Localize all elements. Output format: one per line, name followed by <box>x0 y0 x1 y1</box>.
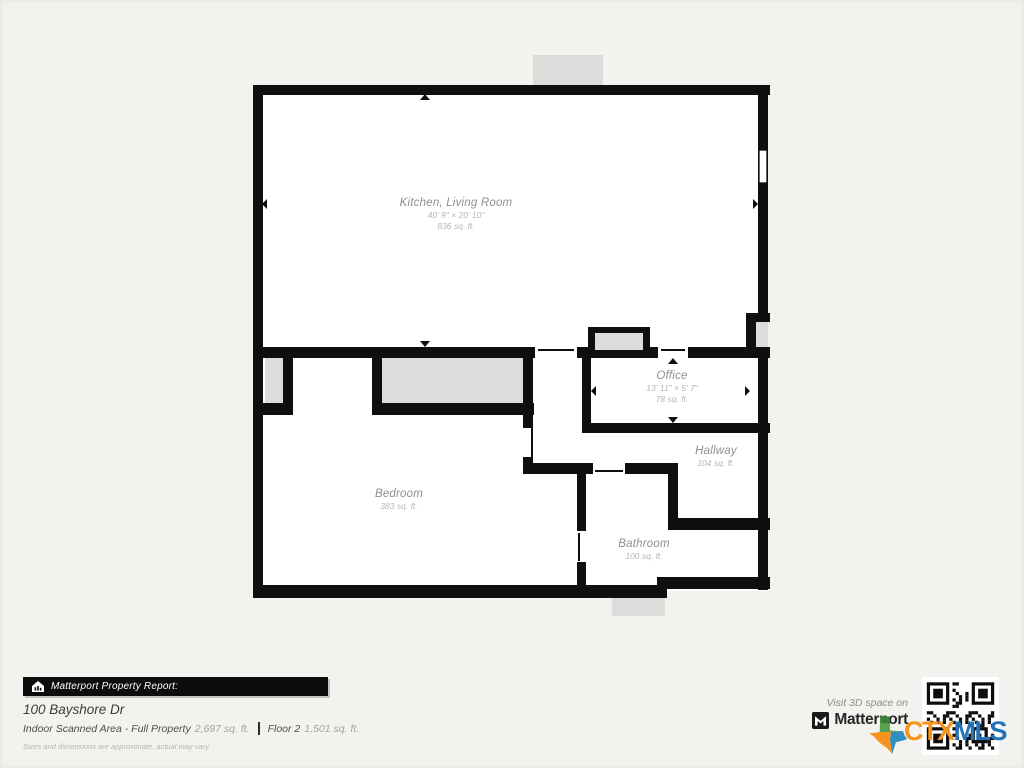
room-name: Office <box>646 369 697 383</box>
room-name: Bathroom <box>618 537 669 551</box>
matterport-logo-icon <box>812 712 829 729</box>
floor-area-value: 1,501 sq. ft. <box>304 723 359 735</box>
texas-icon <box>868 716 908 754</box>
right-notch <box>754 318 768 350</box>
fireplace-bump <box>595 333 643 350</box>
area-summary: Indoor Scanned Area - Full Property 2,69… <box>23 722 359 735</box>
room-area: 104 sq. ft. <box>695 458 737 469</box>
disclaimer-text: Sizes and dimensions are approximate, ac… <box>23 742 210 751</box>
room-label-office: Office 13' 11" × 5' 7" 78 sq. ft. <box>646 369 697 405</box>
property-address: 100 Bayshore Dr <box>23 702 124 717</box>
report-title-bar: Matterport Property Report: <box>23 677 328 696</box>
room-area: 100 sq. ft. <box>618 551 669 562</box>
porch-top <box>533 55 603 89</box>
room-dimensions: 13' 11" × 5' 7" <box>646 383 697 394</box>
floorplan-footprint <box>257 88 767 591</box>
house-icon <box>32 681 44 692</box>
separator <box>258 722 260 735</box>
room-dimensions: 40' 9" × 20' 10" <box>400 210 513 221</box>
room-label-hallway: Hallway 104 sq. ft. <box>695 444 737 469</box>
utility-chase <box>265 356 283 404</box>
room-area: 78 sq. ft. <box>646 394 697 405</box>
scanned-area-value: 2,697 sq. ft. <box>195 723 250 735</box>
room-label-bedroom: Bedroom 383 sq. ft. <box>375 487 423 512</box>
stair-strip <box>382 356 524 404</box>
room-area: 836 sq. ft. <box>400 221 513 232</box>
room-label-kitchen-living: Kitchen, Living Room 40' 9" × 20' 10" 83… <box>400 196 513 232</box>
report-title: Matterport Property Report: <box>51 681 178 692</box>
room-area: 383 sq. ft. <box>375 501 423 512</box>
window <box>759 150 767 183</box>
floor-label: Floor 2 <box>268 723 301 735</box>
room-name: Kitchen, Living Room <box>400 196 513 210</box>
ctx-mls-logo: CTXMLS <box>868 710 1006 754</box>
floorplan-canvas <box>0 0 1024 768</box>
scanned-area-label: Indoor Scanned Area - Full Property <box>23 723 191 735</box>
room-name: Hallway <box>695 444 737 458</box>
ctx-text: CTX <box>904 716 954 746</box>
visit-3d-text: Visit 3D space on <box>826 697 908 709</box>
mls-text: MLS <box>954 716 1007 746</box>
room-name: Bedroom <box>375 487 423 501</box>
room-label-bathroom: Bathroom 100 sq. ft. <box>618 537 669 562</box>
